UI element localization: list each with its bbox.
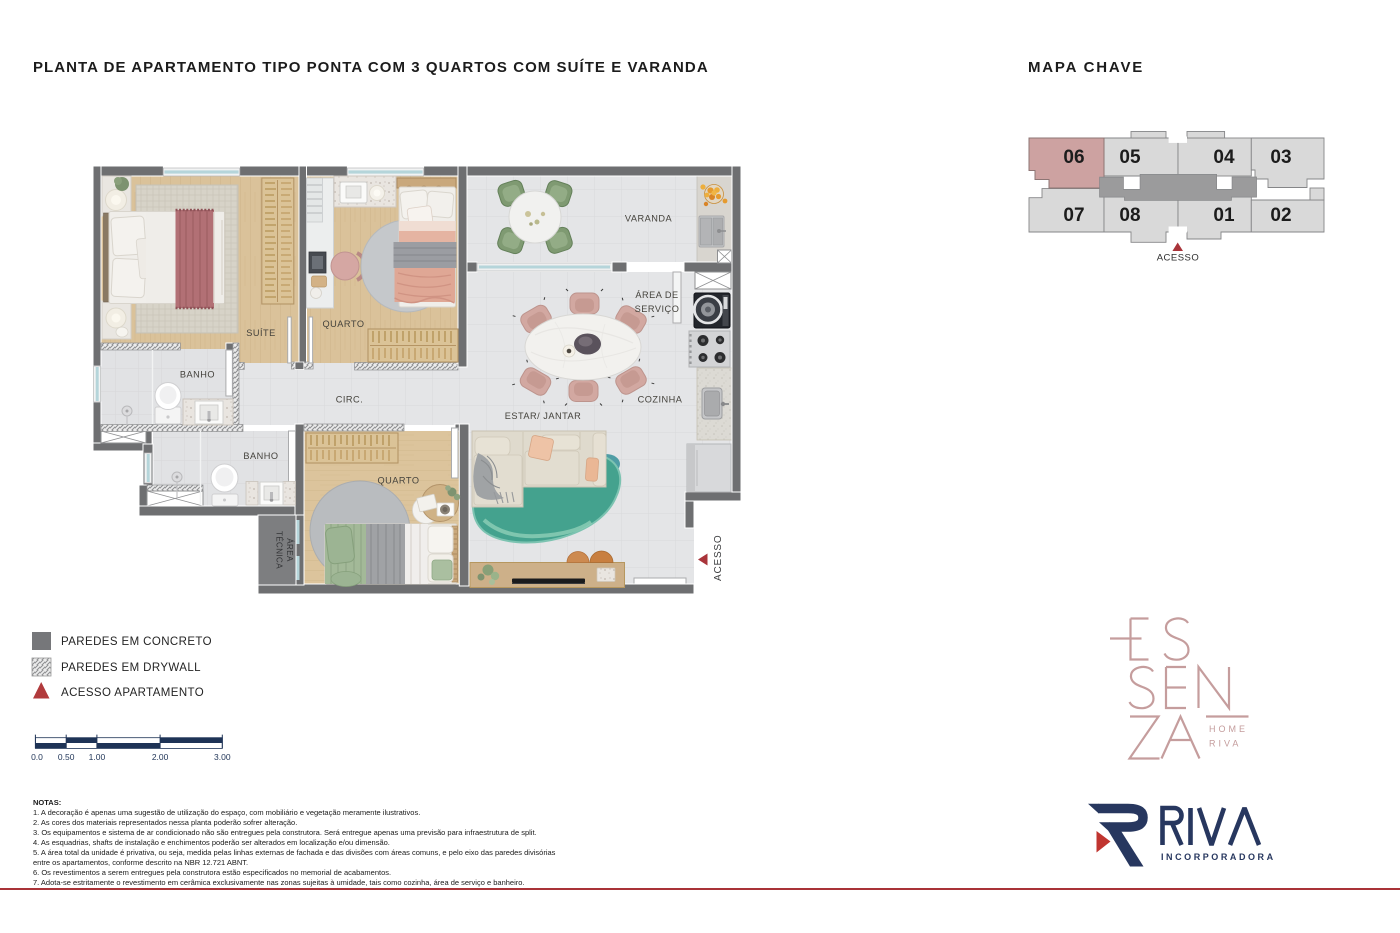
svg-text:02: 02	[1270, 205, 1291, 226]
svg-text:5. A área total da unidade é p: 5. A área total da unidade é privativa, …	[33, 848, 556, 857]
svg-text:entre os apartamentos, conform: entre os apartamentos, conforme descrito…	[33, 858, 248, 867]
svg-text:HOME: HOME	[1209, 724, 1248, 734]
svg-text:07: 07	[1063, 205, 1084, 226]
svg-text:BANHO: BANHO	[180, 370, 215, 380]
svg-text:01: 01	[1213, 205, 1235, 226]
svg-text:04: 04	[1213, 147, 1235, 168]
svg-text:3.00: 3.00	[214, 752, 231, 762]
svg-text:VARANDA: VARANDA	[625, 214, 673, 224]
svg-text:1.00: 1.00	[89, 752, 106, 762]
svg-text:7. Adota-se estritamente o rev: 7. Adota-se estritamente o revestimento …	[33, 878, 525, 887]
svg-text:MAPA CHAVE: MAPA CHAVE	[1028, 59, 1144, 76]
svg-text:1. A decoração é apenas uma su: 1. A decoração é apenas uma sugestão de …	[33, 808, 420, 817]
svg-text:0.0: 0.0	[31, 752, 43, 762]
svg-text:PLANTA DE APARTAMENTO TIPO PON: PLANTA DE APARTAMENTO TIPO PONTA COM 3 Q…	[33, 59, 709, 76]
svg-text:06: 06	[1063, 147, 1084, 168]
svg-text:QUARTO: QUARTO	[323, 319, 365, 329]
svg-text:ACESSO: ACESSO	[713, 535, 724, 581]
svg-text:TÉCNICA: TÉCNICA	[275, 531, 284, 569]
svg-text:6. Os revestimentos a serem en: 6. Os revestimentos a serem entregues pe…	[33, 868, 391, 877]
svg-text:NOTAS:: NOTAS:	[33, 798, 61, 807]
svg-text:2.00: 2.00	[152, 752, 169, 762]
svg-text:BANHO: BANHO	[243, 451, 278, 461]
svg-text:PAREDES EM DRYWALL: PAREDES EM DRYWALL	[61, 662, 201, 674]
svg-text:ÁREA: ÁREA	[285, 538, 294, 562]
svg-text:4. As esquadrias, shafts de in: 4. As esquadrias, shafts de instalação e…	[33, 838, 390, 847]
svg-text:03: 03	[1270, 147, 1291, 168]
svg-text:RIVA: RIVA	[1209, 739, 1241, 749]
svg-text:2. As cores dos materiais repr: 2. As cores dos materiais representados …	[33, 818, 297, 827]
svg-text:SERVIÇO: SERVIÇO	[635, 304, 680, 314]
svg-text:3. Os equipamentos e sistema d: 3. Os equipamentos e sistema de ar condi…	[33, 828, 537, 837]
svg-text:COZINHA: COZINHA	[638, 395, 683, 405]
svg-text:PAREDES EM CONCRETO: PAREDES EM CONCRETO	[61, 636, 212, 648]
svg-text:ACESSO APARTAMENTO: ACESSO APARTAMENTO	[61, 687, 204, 699]
svg-text:08: 08	[1119, 205, 1140, 226]
svg-text:ESTAR/ JANTAR: ESTAR/ JANTAR	[505, 411, 582, 421]
svg-text:QUARTO: QUARTO	[378, 476, 420, 486]
svg-text:ÁREA DE: ÁREA DE	[635, 290, 678, 300]
svg-text:INCORPORADORA: INCORPORADORA	[1161, 852, 1276, 862]
svg-text:SUÍTE: SUÍTE	[246, 328, 276, 338]
svg-text:0.50: 0.50	[58, 752, 75, 762]
svg-text:05: 05	[1119, 147, 1141, 168]
svg-text:CIRC.: CIRC.	[336, 395, 364, 405]
svg-text:ACESSO: ACESSO	[1157, 253, 1200, 264]
